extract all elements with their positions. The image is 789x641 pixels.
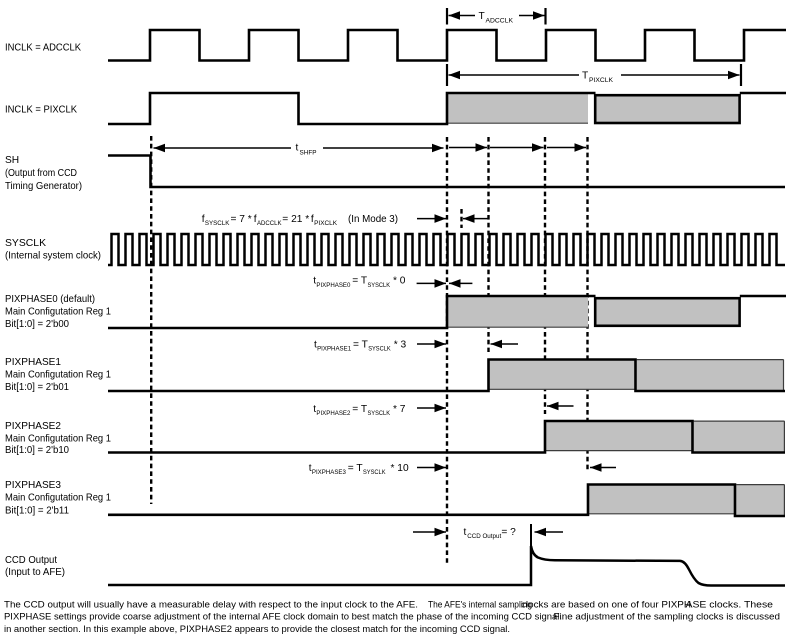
svg-text:Bit[1:0] = 2'b10: Bit[1:0] = 2'b10 xyxy=(5,445,69,456)
svg-text:= T: = T xyxy=(352,404,367,415)
svg-text:INCLK = ADCCLK: INCLK = ADCCLK xyxy=(5,43,81,54)
svg-text:Main Configutation Reg 1: Main Configutation Reg 1 xyxy=(5,433,111,444)
svg-text:SYSCLK: SYSCLK xyxy=(368,282,391,289)
svg-text:PIXPHASE3: PIXPHASE3 xyxy=(5,480,61,491)
svg-text:SHFP: SHFP xyxy=(300,150,317,157)
svg-text:PIXPHASE0 (default): PIXPHASE0 (default) xyxy=(5,294,95,305)
svg-text:Main Configutation Reg 1: Main Configutation Reg 1 xyxy=(5,307,111,318)
svg-text:= T: = T xyxy=(348,463,363,474)
svg-text:SYSCLK: SYSCLK xyxy=(368,410,391,417)
svg-text:CCD Output: CCD Output xyxy=(5,555,57,566)
svg-text:Main Configutation Reg 1: Main Configutation Reg 1 xyxy=(5,493,111,504)
svg-text:T: T xyxy=(582,71,588,82)
svg-text:Bit[1:0] = 2'b11: Bit[1:0] = 2'b11 xyxy=(5,506,69,517)
svg-text:Bit[1:0] = 2'b00: Bit[1:0] = 2'b00 xyxy=(5,319,69,330)
svg-text:PIXCLK: PIXCLK xyxy=(314,220,337,227)
svg-text:PIXCLK: PIXCLK xyxy=(589,77,613,84)
svg-text:= T: = T xyxy=(353,340,368,351)
svg-text:clocks are based on one of fou: clocks are based on one of four PIXPH xyxy=(521,598,691,609)
svg-text:* 0: * 0 xyxy=(393,276,406,287)
svg-text:(Internal system clock): (Internal system clock) xyxy=(5,251,101,262)
svg-text:Main Configutation Reg 1: Main Configutation Reg 1 xyxy=(5,369,111,380)
svg-text:* 10: * 10 xyxy=(391,463,409,474)
svg-text:SYSCLK: SYSCLK xyxy=(368,346,391,353)
svg-text:= 21 *: = 21 * xyxy=(282,214,309,225)
svg-text:= ?: = ? xyxy=(501,527,516,538)
svg-text:ADCCLK: ADCCLK xyxy=(257,220,282,227)
svg-text:SYSCLK: SYSCLK xyxy=(5,238,46,249)
svg-text:PIXPHASE0: PIXPHASE0 xyxy=(316,282,350,289)
svg-text:PIXPHASE1: PIXPHASE1 xyxy=(5,357,61,368)
svg-text:t: t xyxy=(464,527,467,538)
svg-text:* 7: * 7 xyxy=(393,404,406,415)
svg-text:Fine adjustment of the samplin: Fine adjustment of the sampling clocks i… xyxy=(554,611,781,622)
svg-text:INCLK = PIXCLK: INCLK = PIXCLK xyxy=(5,105,77,116)
svg-text:* 3: * 3 xyxy=(394,340,407,351)
svg-text:The AFE's internal sampling: The AFE's internal sampling xyxy=(428,598,532,609)
svg-text:SYSCLK: SYSCLK xyxy=(363,469,386,476)
svg-text:T: T xyxy=(479,11,485,22)
svg-text:(Input to AFE): (Input to AFE) xyxy=(5,567,65,578)
svg-text:in another section. In this ex: in another section. In this example abov… xyxy=(4,623,510,634)
svg-text:= 7 *: = 7 * xyxy=(231,214,252,225)
svg-text:PIXPHASE2: PIXPHASE2 xyxy=(316,410,350,417)
svg-text:(Output from CCD: (Output from CCD xyxy=(5,168,77,179)
svg-text:ASE clocks. These: ASE clocks. These xyxy=(686,598,774,609)
svg-text:Bit[1:0] = 2'b01: Bit[1:0] = 2'b01 xyxy=(5,382,69,393)
svg-text:ADCCLK: ADCCLK xyxy=(486,18,514,25)
svg-text:PIXPHASE3: PIXPHASE3 xyxy=(312,469,346,476)
svg-text:PIXPHASE1: PIXPHASE1 xyxy=(317,346,351,353)
svg-text:CCD Output: CCD Output xyxy=(467,533,501,540)
svg-text:(In Mode 3): (In Mode 3) xyxy=(348,214,398,225)
svg-text:PIXPHASE2: PIXPHASE2 xyxy=(5,421,61,432)
svg-text:PIXPHASE settings provide coar: PIXPHASE settings provide coarse adjustm… xyxy=(4,611,562,622)
svg-text:The CCD output will usually ha: The CCD output will usually have a measu… xyxy=(4,598,418,609)
svg-text:Timing Generator): Timing Generator) xyxy=(5,181,82,192)
svg-text:t: t xyxy=(296,143,299,154)
svg-text:SH: SH xyxy=(5,155,19,166)
svg-text:SYSCLK: SYSCLK xyxy=(205,220,230,227)
svg-text:= T: = T xyxy=(352,276,367,287)
